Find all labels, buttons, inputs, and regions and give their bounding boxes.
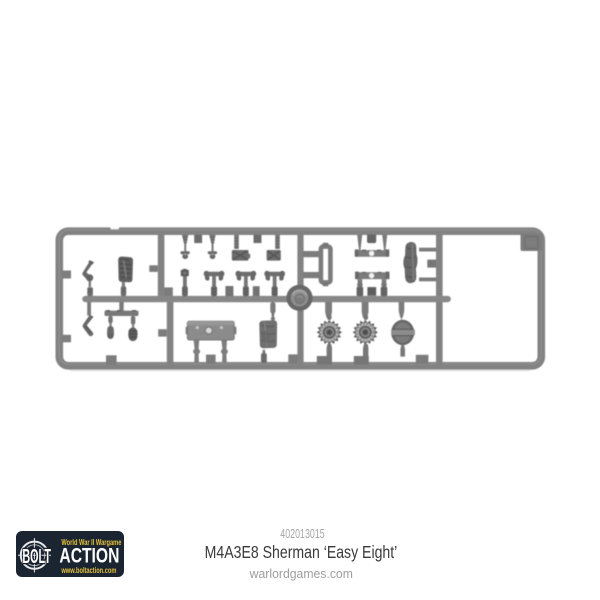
svg-text:ACTION: ACTION [59, 543, 119, 567]
svg-text:BOLT: BOLT [22, 546, 51, 568]
svg-text:www.boltaction.com: www.boltaction.com [61, 565, 117, 574]
